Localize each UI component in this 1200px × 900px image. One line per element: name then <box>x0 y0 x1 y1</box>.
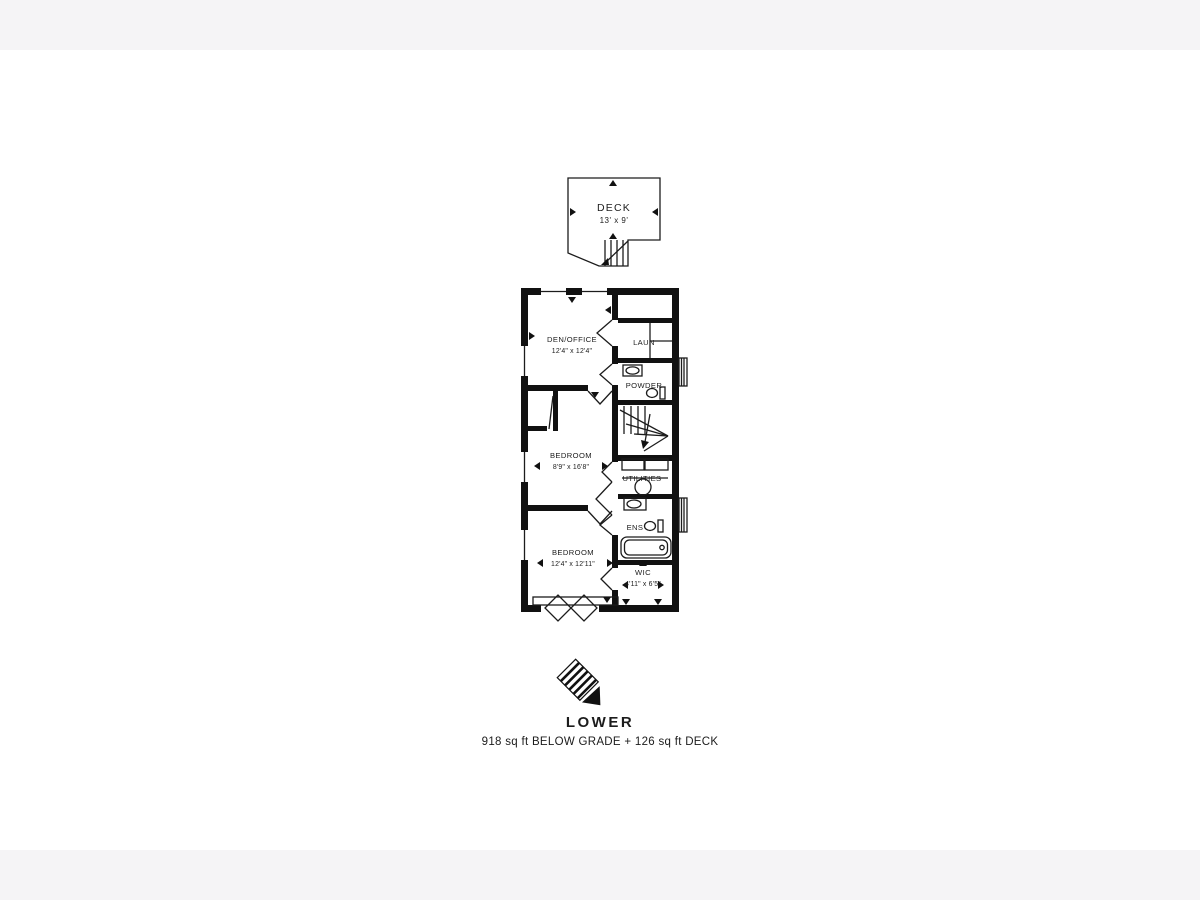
deck-stairs-icon <box>601 240 628 266</box>
wall-marker <box>652 208 658 216</box>
ensuite-sink-icon <box>624 498 646 510</box>
room-label-den-office: DEN/OFFICE <box>547 335 597 344</box>
stairs-icon <box>620 406 668 451</box>
deck-label: DECK <box>597 202 631 214</box>
floorplan-drawing: DECK 13' x 9' <box>0 0 1200 900</box>
floorplan-page: DECK 13' x 9' <box>0 0 1200 900</box>
room-dims-bedroom-lower: 12'4" x 12'11" <box>551 561 595 568</box>
room-dims-bedroom-mid: 8'9" x 16'8" <box>553 464 590 471</box>
room-label-laundry: LAUN <box>633 338 655 347</box>
room-dims-den-office: 12'4" x 12'4" <box>552 348 593 355</box>
striped-compass-logo-icon <box>557 659 611 713</box>
room-label-ensuite: ENS <box>627 523 644 532</box>
wall-marker <box>570 208 576 216</box>
window-well-hatch <box>679 358 687 532</box>
wall-marker <box>609 233 617 239</box>
ensuite-toilet-icon <box>645 520 664 532</box>
plan-subtitle: 918 sq ft BELOW GRADE + 126 sq ft DECK <box>482 736 719 748</box>
room-label-bedroom-mid: BEDROOM <box>550 451 592 460</box>
bottom-letterbox-band <box>0 850 1200 900</box>
powder-sink-icon <box>623 365 642 376</box>
wall-marker <box>609 180 617 186</box>
closet-door-leaf <box>549 396 553 429</box>
plan-title: LOWER <box>566 714 634 731</box>
deck-dims: 13' x 9' <box>600 216 629 225</box>
room-label-utilities: UTILITIES <box>622 474 661 483</box>
bathtub-icon <box>621 537 671 558</box>
room-dims-wic: 4'11" x 6'5" <box>625 581 661 588</box>
room-label-powder: POWDER <box>626 381 663 390</box>
room-label-wic: WIC <box>635 568 651 577</box>
top-letterbox-band <box>0 0 1200 50</box>
room-label-bedroom-lower: BEDROOM <box>552 548 594 557</box>
